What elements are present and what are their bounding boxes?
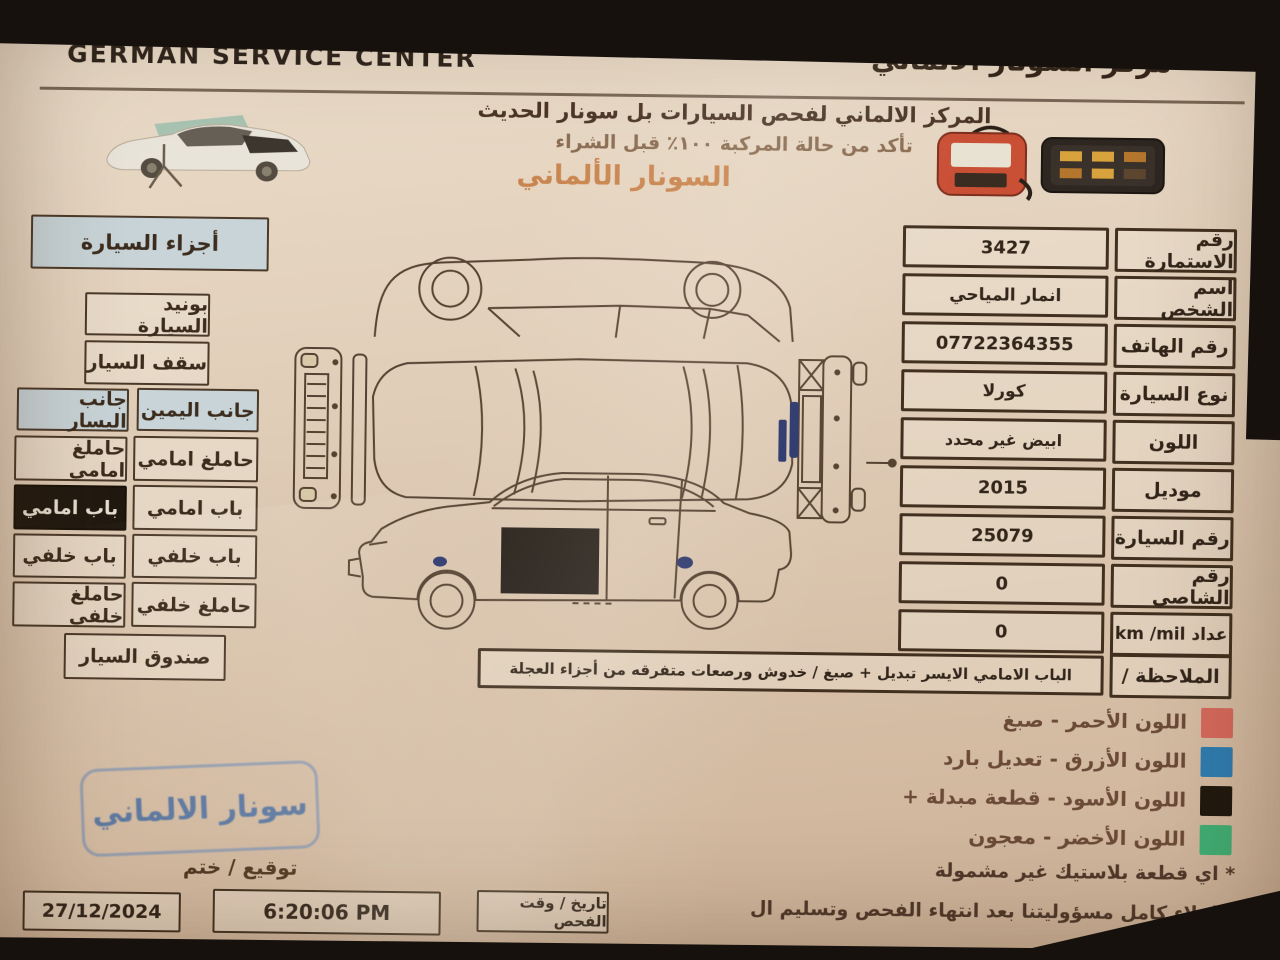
part-front-door-left-highlighted[interactable]: باب امامي: [13, 484, 127, 530]
black-replaced-front-door: [502, 528, 599, 593]
form-label-form-number: رقم الاستمارة: [1115, 228, 1238, 273]
inspection-datetime-label: تاريخ / وقت الفحص: [476, 890, 609, 934]
inspection-time: 6:20:06 PM: [212, 889, 441, 936]
form-value-form-number: 3427: [903, 225, 1109, 270]
legend-black-label: اللون الأسود - قطعة مبدلة +: [756, 782, 1186, 811]
part-rear-fender-right[interactable]: حاملغ خلفي: [131, 582, 257, 629]
legend-red-label: اللون الأحمر - صبغ: [757, 704, 1187, 733]
legend-green-swatch: [1199, 825, 1231, 855]
form-label-car-number: رقم السيارة: [1111, 516, 1234, 561]
part-rear-door-right[interactable]: باب خلفي: [132, 534, 258, 580]
part-right-side[interactable]: جانب اليمين: [137, 388, 260, 432]
car-damage-diagram: [276, 244, 901, 652]
form-label-remarks: الملاحظة /: [1109, 654, 1232, 699]
signature-caption: توقيع / ختم: [170, 854, 310, 880]
form-label-color: اللون: [1112, 420, 1235, 465]
disclaimer-plastic: * اي قطعة بلاستيك غير مشمولة: [695, 857, 1235, 886]
diagnostic-tools-photo: [923, 118, 1179, 206]
blue-mark-front-fender: [433, 556, 447, 566]
part-left-side[interactable]: جانب اليسار: [17, 387, 130, 431]
covered-car-photo: [92, 103, 328, 191]
legend-green-label: اللون الأخضر - معجون: [756, 821, 1186, 850]
car-plan-view: [372, 357, 794, 504]
blue-mark-bumper: [789, 402, 799, 458]
part-trunk[interactable]: صندوق السيار: [64, 633, 227, 681]
part-front-fender-right[interactable]: حاملغ امامي: [133, 436, 259, 483]
form-label-person-name: اسم الشخص: [1114, 276, 1237, 321]
part-bonnet[interactable]: بونيد السيارة: [85, 292, 211, 337]
part-front-fender-left[interactable]: حاملغ امامي: [14, 435, 128, 481]
legend-blue-swatch: [1200, 747, 1232, 777]
paper-sheet: GERMAN SERVICE CENTER GERMAN AUTO S E R …: [0, 0, 1280, 960]
blue-mark-plan: [778, 420, 787, 462]
inspection-report-photo: GERMAN SERVICE CENTER GERMAN AUTO S E R …: [0, 0, 1280, 960]
form-value-odometer: 0: [898, 609, 1104, 654]
form-value-person-name: انمار المياحي: [902, 273, 1108, 318]
form-label-phone: رقم الهاتف: [1113, 324, 1236, 369]
rear-bumper-part: [294, 348, 367, 509]
form-value-phone: 07722364355: [901, 321, 1107, 366]
car-side-view: [348, 470, 792, 632]
part-front-door-right[interactable]: باب امامي: [132, 485, 258, 532]
part-roof[interactable]: سقف السيار: [84, 340, 210, 386]
form-value-car-number: 25079: [899, 513, 1105, 558]
form-label-odometer: عداد km /mil: [1110, 612, 1233, 657]
legend-red-swatch: [1201, 708, 1233, 738]
legend-blue-label: اللون الأزرق - تعديل بارد: [756, 743, 1186, 772]
form-value-color: ابيض غير محدد: [900, 417, 1106, 462]
legend-black-swatch: [1200, 786, 1232, 816]
blue-mark-rear-fender: [677, 556, 693, 568]
inspection-date: 27/12/2024: [22, 890, 180, 932]
front-bumper-part: [789, 356, 898, 523]
brand-orange-text: السونار الألماني: [424, 158, 824, 194]
parts-panel-title: أجزاء السيارة: [31, 215, 270, 272]
form-label-model: موديل: [1112, 468, 1235, 513]
form-value-car-type: كورلا: [901, 369, 1107, 414]
form-value-chassis-number: 0: [899, 561, 1105, 606]
part-rear-fender-left[interactable]: حاملغ خلفي: [12, 581, 126, 627]
car-top-folded-side: [375, 256, 794, 342]
part-rear-door-left[interactable]: باب خلفي: [13, 533, 127, 578]
company-stamp: سونار الالماني: [79, 760, 320, 857]
form-label-car-type: نوع السيارة: [1113, 372, 1236, 417]
form-value-model: 2015: [900, 465, 1106, 510]
form-label-chassis-number: رقم الشاصي: [1110, 564, 1233, 609]
form-value-remarks: الباب الامامي الايسر تبديل + صبغ / خدوش …: [477, 648, 1103, 696]
